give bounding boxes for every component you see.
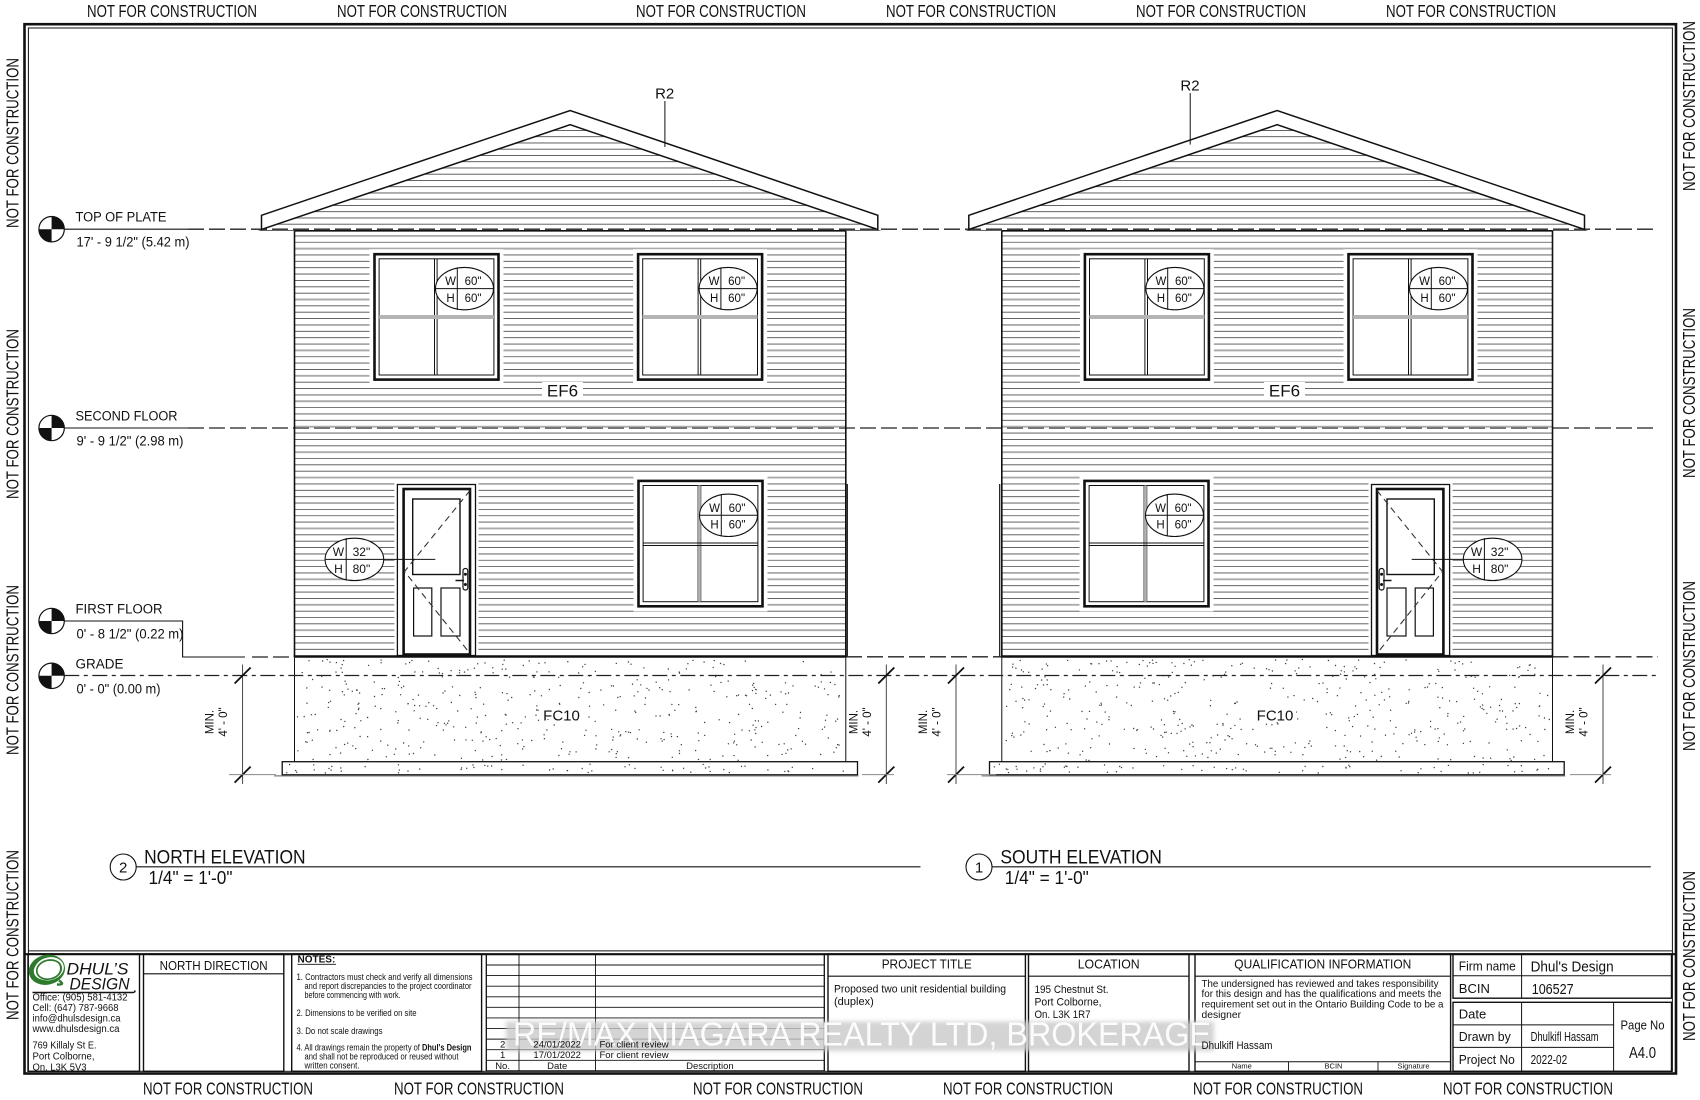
svg-text:0' - 8 1/2" (0.22 m): 0' - 8 1/2" (0.22 m)	[77, 627, 184, 642]
svg-text:NOT FOR CONSTRUCTION: NOT FOR CONSTRUCTION	[1136, 1, 1306, 21]
svg-text:60": 60"	[1175, 293, 1192, 305]
svg-text:written consent.: written consent.	[304, 1060, 360, 1070]
svg-text:R2: R2	[655, 85, 674, 102]
svg-text:Signature: Signature	[1397, 1062, 1429, 1071]
svg-text:60": 60"	[728, 293, 745, 305]
svg-text:4' - 0": 4' - 0"	[1579, 707, 1591, 736]
svg-text:1: 1	[975, 859, 983, 876]
svg-text:SECOND FLOOR: SECOND FLOOR	[76, 409, 178, 425]
svg-text:GRADE: GRADE	[76, 657, 124, 673]
svg-text:NOT FOR CONSTRUCTION: NOT FOR CONSTRUCTION	[3, 58, 23, 228]
svg-text:FC10: FC10	[543, 708, 580, 725]
svg-text:60": 60"	[465, 293, 482, 305]
svg-text:4' - 0": 4' - 0"	[932, 707, 944, 736]
svg-text:1/4" = 1'-0": 1/4" = 1'-0"	[1005, 868, 1089, 888]
svg-text:Project No: Project No	[1459, 1052, 1515, 1067]
svg-text:106527: 106527	[1532, 981, 1574, 998]
svg-text:NOT FOR CONSTRUCTION: NOT FOR CONSTRUCTION	[3, 850, 23, 1020]
svg-text:NOT FOR CONSTRUCTION: NOT FOR CONSTRUCTION	[143, 1078, 313, 1098]
svg-text:A4.0: A4.0	[1629, 1045, 1656, 1062]
svg-text:PROJECT TITLE: PROJECT TITLE	[882, 956, 972, 971]
svg-text:Proposed two unit residential: Proposed two unit residential building	[834, 984, 1006, 996]
svg-text:NOT FOR CONSTRUCTION: NOT FOR CONSTRUCTION	[943, 1078, 1113, 1098]
svg-text:0' - 0" (0.00 m): 0' - 0" (0.00 m)	[77, 682, 161, 697]
svg-text:info@dhulsdesign.ca: info@dhulsdesign.ca	[33, 1014, 122, 1025]
svg-text:60": 60"	[729, 520, 746, 532]
svg-text:(duplex): (duplex)	[834, 996, 874, 1008]
svg-text:BCIN: BCIN	[1325, 1062, 1343, 1071]
svg-text:9' - 9 1/2" (2.98 m): 9' - 9 1/2" (2.98 m)	[77, 434, 184, 449]
svg-text:32": 32"	[353, 545, 371, 559]
svg-text:QUALIFICATION INFORMATION: QUALIFICATION INFORMATION	[1234, 956, 1411, 971]
svg-text:EF6: EF6	[547, 382, 578, 401]
svg-text:MIN.: MIN.	[848, 710, 860, 734]
svg-text:60": 60"	[1439, 276, 1456, 288]
svg-text:H: H	[1156, 520, 1164, 532]
svg-text:H: H	[1157, 293, 1165, 305]
svg-text:W: W	[709, 276, 720, 288]
svg-text:MIN.: MIN.	[205, 710, 217, 734]
svg-text:No.: No.	[495, 1061, 510, 1072]
svg-text:17/01/2022: 17/01/2022	[533, 1050, 581, 1061]
svg-text:NOT FOR CONSTRUCTION: NOT FOR CONSTRUCTION	[636, 1, 806, 21]
svg-text:For client review: For client review	[600, 1050, 669, 1061]
svg-text:LOCATION: LOCATION	[1078, 956, 1140, 971]
svg-text:60": 60"	[729, 503, 746, 515]
svg-text:before commencing with work.: before commencing with work.	[305, 990, 401, 1000]
svg-text:SOUTH ELEVATION: SOUTH ELEVATION	[1000, 847, 1162, 868]
svg-text:On. L3K 1R7: On. L3K 1R7	[1035, 1009, 1091, 1021]
svg-text:Cell: (647) 787-9668: Cell: (647) 787-9668	[33, 1003, 120, 1014]
svg-text:BCIN: BCIN	[1459, 981, 1490, 996]
svg-text:32": 32"	[1491, 545, 1509, 559]
svg-text:Drawn by: Drawn by	[1459, 1029, 1511, 1044]
svg-text:NOT FOR CONSTRUCTION: NOT FOR CONSTRUCTION	[1386, 1, 1556, 21]
svg-text:2022-02: 2022-02	[1531, 1053, 1568, 1067]
svg-text:NOT FOR CONSTRUCTION: NOT FOR CONSTRUCTION	[3, 585, 23, 755]
svg-text:H: H	[1420, 293, 1428, 305]
svg-text:60": 60"	[728, 276, 745, 288]
svg-text:W: W	[1419, 276, 1430, 288]
svg-text:NORTH ELEVATION: NORTH ELEVATION	[144, 847, 306, 868]
svg-text:Dhul's Design: Dhul's Design	[1531, 959, 1614, 976]
svg-text:NOT FOR CONSTRUCTION: NOT FOR CONSTRUCTION	[337, 1, 507, 21]
svg-text:NOT FOR CONSTRUCTION: NOT FOR CONSTRUCTION	[3, 329, 23, 499]
svg-text:R2: R2	[1180, 77, 1199, 94]
svg-text:FIRST FLOOR: FIRST FLOOR	[76, 602, 163, 618]
svg-text:1/4" = 1'-0": 1/4" = 1'-0"	[149, 868, 233, 888]
svg-text:769 Killaly St E.: 769 Killaly St E.	[33, 1041, 97, 1052]
svg-text:H: H	[334, 562, 343, 576]
svg-text:2: 2	[500, 1040, 505, 1051]
svg-text:60": 60"	[1175, 503, 1192, 515]
svg-text:60": 60"	[1175, 520, 1192, 532]
svg-text:NOT FOR CONSTRUCTION: NOT FOR CONSTRUCTION	[1679, 21, 1699, 191]
svg-text:On. L3K 5V3: On. L3K 5V3	[33, 1062, 88, 1073]
svg-text:4' - 0": 4' - 0"	[862, 707, 874, 736]
svg-text:Page No: Page No	[1621, 1019, 1665, 1033]
svg-text:W: W	[709, 503, 720, 515]
svg-text:3. Do not scale drawings: 3. Do not scale drawings	[297, 1026, 383, 1036]
svg-text:NOT FOR CONSTRUCTION: NOT FOR CONSTRUCTION	[1679, 871, 1699, 1041]
svg-text:80": 80"	[353, 562, 371, 576]
svg-text:H: H	[1472, 562, 1481, 576]
svg-text:EF6: EF6	[1269, 382, 1300, 401]
svg-text:2. Dimensions to be verified o: 2. Dimensions to be verified on site	[297, 1008, 417, 1018]
svg-text:60": 60"	[1175, 276, 1192, 288]
svg-text:MIN.: MIN.	[918, 710, 930, 734]
svg-text:W: W	[1471, 545, 1483, 559]
svg-text:For client review: For client review	[600, 1040, 669, 1051]
svg-text:1: 1	[500, 1050, 505, 1061]
svg-text:W: W	[1155, 276, 1166, 288]
svg-text:4' - 0": 4' - 0"	[218, 707, 230, 736]
svg-text:Date: Date	[547, 1061, 567, 1072]
svg-text:www.dhulsdesign.ca: www.dhulsdesign.ca	[32, 1024, 121, 1035]
svg-text:W: W	[333, 545, 345, 559]
svg-text:H: H	[710, 293, 718, 305]
svg-text:Firm name: Firm name	[1459, 959, 1516, 974]
svg-text:W: W	[1155, 503, 1166, 515]
svg-text:60": 60"	[465, 276, 482, 288]
svg-text:Port Colborne,: Port Colborne,	[1035, 996, 1102, 1008]
svg-text:MIN.: MIN.	[1565, 710, 1577, 734]
svg-text:FC10: FC10	[1257, 708, 1294, 725]
svg-text:17' - 9 1/2" (5.42 m): 17' - 9 1/2" (5.42 m)	[77, 235, 190, 250]
svg-text:NOT FOR CONSTRUCTION: NOT FOR CONSTRUCTION	[693, 1078, 863, 1098]
svg-text:80": 80"	[1491, 562, 1509, 576]
svg-text:Dhulkifl Hassam: Dhulkifl Hassam	[1202, 1040, 1273, 1052]
svg-text:NOT FOR CONSTRUCTION: NOT FOR CONSTRUCTION	[1443, 1078, 1613, 1098]
svg-text:NOT FOR CONSTRUCTION: NOT FOR CONSTRUCTION	[1193, 1078, 1363, 1098]
svg-text:The undersigned has reviewed a: The undersigned has reviewed and takes r…	[1202, 979, 1440, 990]
svg-text:DESIGN: DESIGN	[70, 976, 130, 994]
svg-text:NOT FOR CONSTRUCTION: NOT FOR CONSTRUCTION	[87, 1, 257, 21]
svg-text:Office: (905) 581-4132: Office: (905) 581-4132	[33, 993, 128, 1004]
svg-text:H: H	[710, 520, 718, 532]
svg-text:195 Chestnut St.: 195 Chestnut St.	[1035, 984, 1109, 996]
svg-text:Description: Description	[686, 1061, 734, 1072]
svg-text:NOT FOR CONSTRUCTION: NOT FOR CONSTRUCTION	[1679, 308, 1699, 478]
svg-text:NOT FOR CONSTRUCTION: NOT FOR CONSTRUCTION	[1679, 581, 1699, 751]
svg-text:NORTH DIRECTION: NORTH DIRECTION	[160, 958, 268, 973]
svg-text:W: W	[445, 276, 456, 288]
svg-text:designer: designer	[1202, 1010, 1242, 1021]
svg-text:Dhulkifl Hassam: Dhulkifl Hassam	[1531, 1030, 1599, 1044]
svg-text:NOT FOR CONSTRUCTION: NOT FOR CONSTRUCTION	[886, 1, 1056, 21]
svg-text:2: 2	[119, 859, 127, 876]
svg-text:24/01/2022: 24/01/2022	[533, 1040, 581, 1051]
svg-text:Name: Name	[1232, 1062, 1252, 1071]
svg-text:NOT FOR CONSTRUCTION: NOT FOR CONSTRUCTION	[394, 1078, 564, 1098]
svg-text:60": 60"	[1439, 293, 1456, 305]
svg-text:TOP OF PLATE: TOP OF PLATE	[76, 210, 167, 226]
svg-text:Port Colborne,: Port Colborne,	[33, 1052, 95, 1063]
svg-text:Date: Date	[1459, 1006, 1486, 1021]
svg-text:H: H	[446, 293, 454, 305]
